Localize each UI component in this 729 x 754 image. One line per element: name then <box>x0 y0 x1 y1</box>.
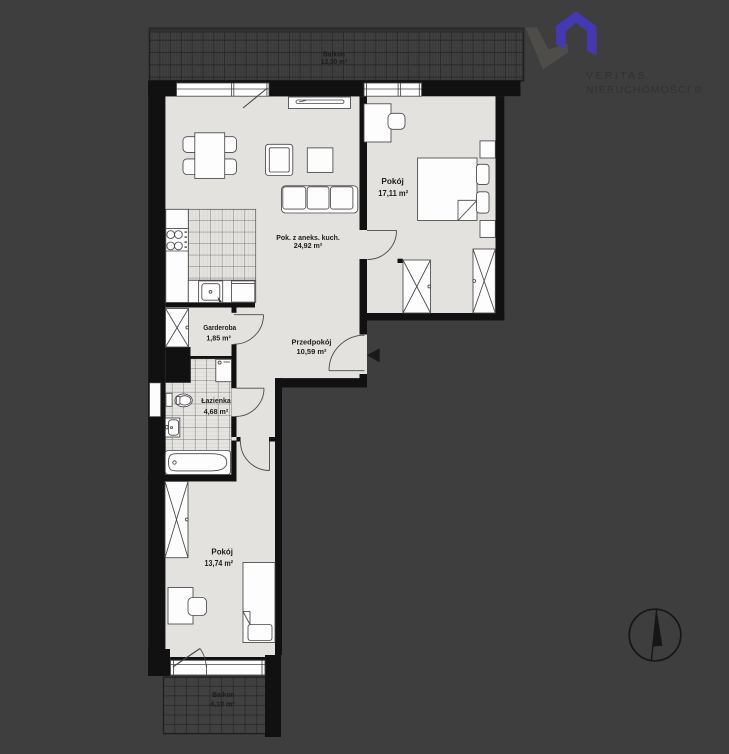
svg-text:12,30 m²: 12,30 m² <box>321 57 347 66</box>
svg-text:Przedpokój: Przedpokój <box>292 337 332 346</box>
svg-text:Garderoba: Garderoba <box>203 323 237 332</box>
svg-text:Balkon: Balkon <box>212 690 234 699</box>
svg-text:Pokój: Pokój <box>211 547 233 556</box>
svg-text:13,74 m²: 13,74 m² <box>205 559 234 568</box>
svg-text:VERITAS: VERITAS <box>586 70 647 82</box>
svg-text:24,92 m²: 24,92 m² <box>294 241 323 250</box>
svg-text:4,10 m²: 4,10 m² <box>210 700 235 709</box>
svg-text:1,85 m²: 1,85 m² <box>206 333 231 342</box>
svg-text:4,68 m²: 4,68 m² <box>204 407 229 416</box>
svg-text:Pokój: Pokój <box>381 177 404 186</box>
svg-text:Łazienka: Łazienka <box>201 396 231 405</box>
svg-text:17,11 m²: 17,11 m² <box>378 189 408 198</box>
svg-text:10,59 m²: 10,59 m² <box>297 347 327 356</box>
svg-text:NIERUCHOMOŚCI ®: NIERUCHOMOŚCI ® <box>586 83 704 96</box>
